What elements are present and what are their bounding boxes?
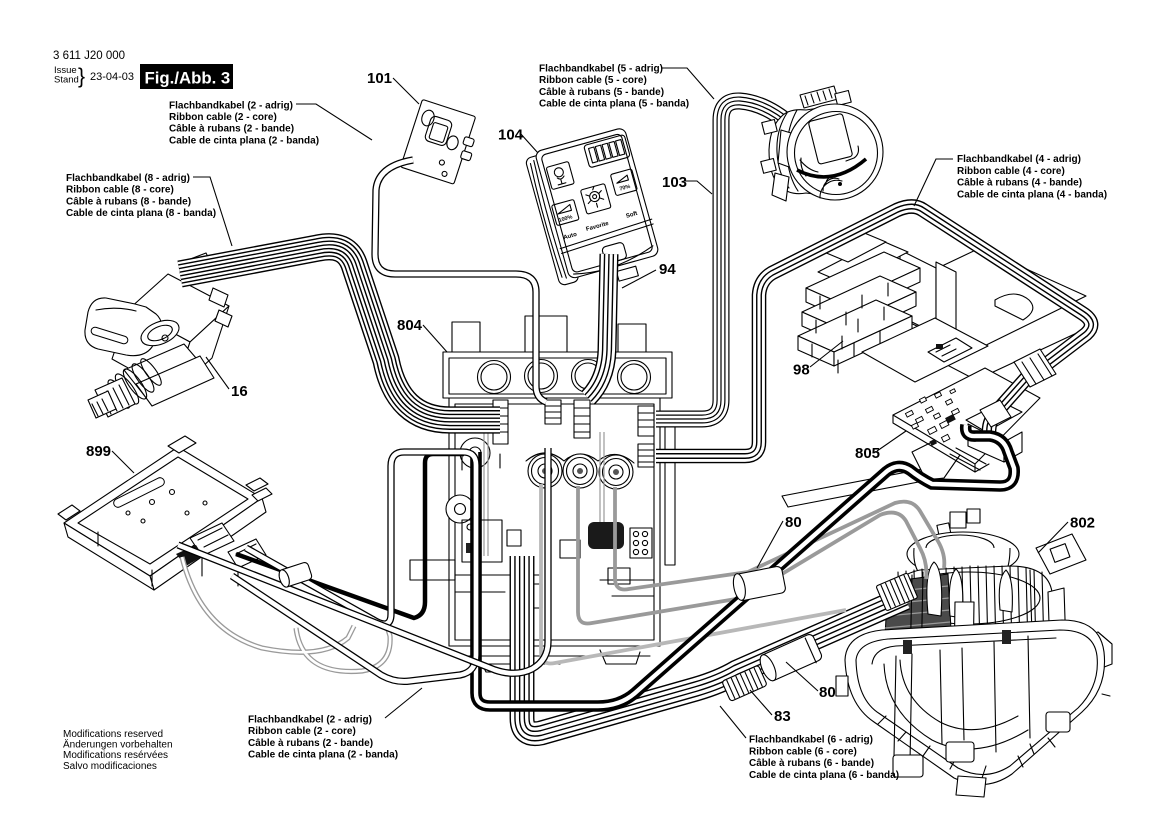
svg-text:Ribbon cable (2 - core): Ribbon cable (2 - core) — [169, 112, 277, 123]
svg-text:Ribbon cable (8 - core): Ribbon cable (8 - core) — [66, 185, 174, 196]
svg-text:Stand: Stand — [54, 75, 79, 86]
svg-text:94: 94 — [659, 261, 676, 278]
svg-text:104: 104 — [498, 127, 524, 144]
svg-text:804: 804 — [397, 317, 423, 334]
svg-text:Cable de cinta plana (5 - band: Cable de cinta plana (5 - banda) — [539, 99, 689, 110]
svg-text:Flachbandkabel (5 - adrig): Flachbandkabel (5 - adrig) — [539, 64, 663, 75]
svg-text:Flachbandkabel (2 - adrig): Flachbandkabel (2 - adrig) — [169, 100, 293, 111]
svg-text:Fig./Abb. 3: Fig./Abb. 3 — [145, 69, 231, 88]
svg-text:Flachbandkabel (6 - adrig): Flachbandkabel (6 - adrig) — [749, 735, 873, 746]
svg-text:899: 899 — [86, 443, 111, 460]
svg-text:Câble à rubans (8 - bande): Câble à rubans (8 - bande) — [66, 196, 191, 207]
svg-text:Câble à rubans (2 - bande): Câble à rubans (2 - bande) — [248, 738, 373, 749]
svg-text:Câble à rubans (5 - bande): Câble à rubans (5 - bande) — [539, 87, 664, 98]
svg-text:98: 98 — [793, 362, 810, 379]
svg-text:Modifications reserved: Modifications reserved — [63, 729, 163, 740]
svg-text:Ribbon cable (5 - core): Ribbon cable (5 - core) — [539, 75, 647, 86]
svg-text:Ribbon cable (6 - core): Ribbon cable (6 - core) — [749, 746, 857, 757]
svg-text:Cable de cinta plana (8 - band: Cable de cinta plana (8 - banda) — [66, 208, 216, 219]
svg-text:80: 80 — [785, 514, 802, 531]
svg-text:Ribbon cable (4 - core): Ribbon cable (4 - core) — [957, 166, 1065, 177]
svg-text:Änderungen vorbehalten: Änderungen vorbehalten — [63, 739, 173, 751]
svg-text:Flachbandkabel (2 - adrig): Flachbandkabel (2 - adrig) — [248, 715, 372, 726]
svg-text:Modifications resérvées: Modifications resérvées — [63, 750, 168, 761]
svg-text:16: 16 — [231, 383, 248, 400]
svg-text:Cable de cinta plana (2 - band: Cable de cinta plana (2 - banda) — [248, 750, 398, 761]
svg-text:101: 101 — [367, 70, 392, 87]
svg-text:103: 103 — [662, 174, 687, 191]
svg-text:80: 80 — [819, 684, 836, 701]
svg-text:Câble à rubans (4 - bande): Câble à rubans (4 - bande) — [957, 178, 1082, 189]
svg-text:802: 802 — [1070, 515, 1095, 532]
svg-text:Flachbandkabel (8 - adrig): Flachbandkabel (8 - adrig) — [66, 173, 190, 184]
svg-text:Cable de cinta plana (2 - band: Cable de cinta plana (2 - banda) — [169, 135, 319, 146]
svg-text:Cable de cinta plana (6 - band: Cable de cinta plana (6 - banda) — [749, 770, 899, 781]
svg-text:Câble à rubans (2 - bande): Câble à rubans (2 - bande) — [169, 124, 294, 135]
svg-text:Salvo modificaciones: Salvo modificaciones — [63, 761, 157, 772]
svg-text:23-04-03: 23-04-03 — [90, 71, 134, 83]
svg-text:3 611 J20 000: 3 611 J20 000 — [53, 50, 125, 62]
svg-text:Câble à rubans (6 - bande): Câble à rubans (6 - bande) — [749, 758, 874, 769]
svg-text:805: 805 — [855, 445, 880, 462]
svg-text:Cable de cinta plana (4 - band: Cable de cinta plana (4 - banda) — [957, 189, 1107, 200]
svg-text:}: } — [78, 65, 85, 88]
svg-text:Flachbandkabel (4 - adrig): Flachbandkabel (4 - adrig) — [957, 154, 1081, 165]
svg-text:Ribbon cable (2 - core): Ribbon cable (2 - core) — [248, 726, 356, 737]
svg-text:83: 83 — [774, 708, 791, 725]
